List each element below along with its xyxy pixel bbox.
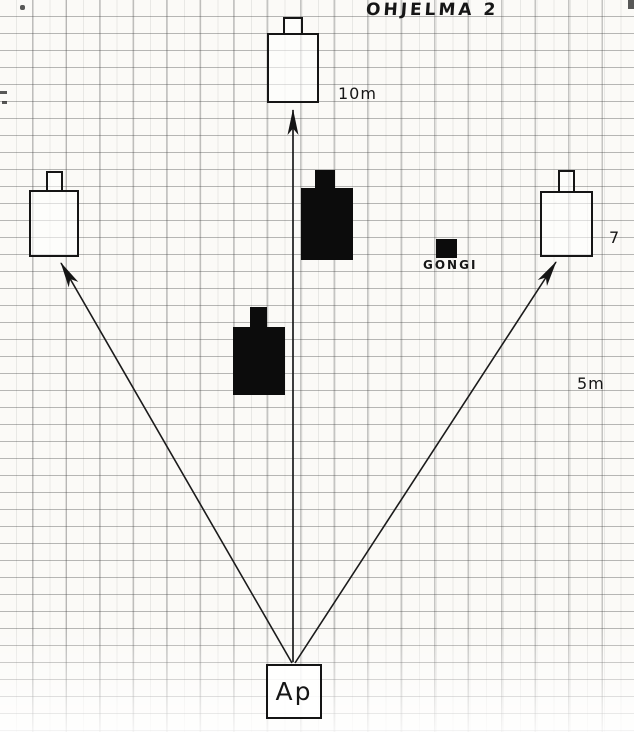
- start-position-label: Ap: [276, 677, 313, 706]
- target-top-head: [283, 17, 303, 34]
- gong-marker: [436, 239, 457, 258]
- photocopy-artifact: [628, 0, 634, 9]
- photocopy-artifact: [2, 101, 7, 104]
- filled-target-lower-head: [250, 307, 267, 329]
- arrow-to-right-target: [295, 262, 556, 663]
- distance-label-7: 7: [609, 228, 620, 247]
- filled-target-upper-body: [301, 188, 353, 260]
- distance-label-10m: 10m: [338, 84, 377, 103]
- target-right-head: [558, 170, 575, 192]
- arrows-overlay: [0, 0, 634, 732]
- distance-label-5m: 5m: [577, 374, 605, 393]
- target-left-head: [46, 171, 63, 191]
- target-left-body: [29, 190, 79, 257]
- gong-label: GONGI: [423, 258, 477, 272]
- filled-target-lower-body: [233, 327, 285, 395]
- target-right-body: [540, 191, 593, 257]
- photocopy-artifact: [0, 91, 7, 94]
- graph-paper-sheet: OHJELMA 2 10m 7 GONGI 5m Ap: [0, 0, 634, 732]
- target-top-body: [267, 33, 319, 103]
- photocopy-artifact: [20, 5, 25, 10]
- filled-target-upper-head: [315, 170, 335, 190]
- page-title: OHJELMA 2: [365, 0, 499, 20]
- start-position-box: Ap: [266, 664, 322, 719]
